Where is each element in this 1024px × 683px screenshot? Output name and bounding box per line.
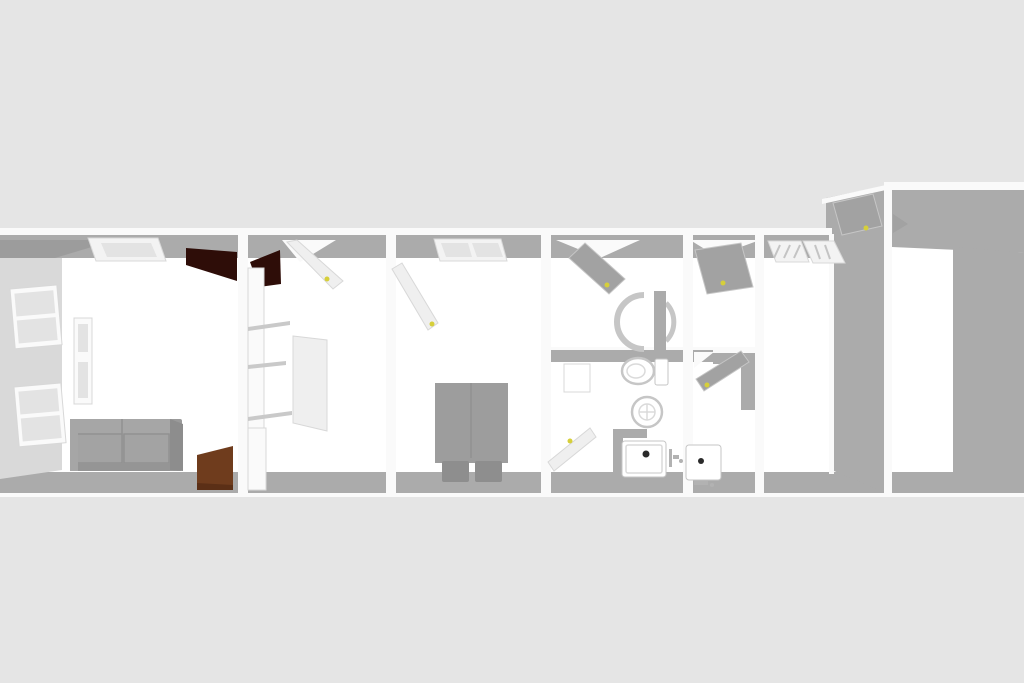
door-handle xyxy=(721,281,726,286)
window-2[interactable] xyxy=(14,383,66,447)
shelf-lower-panel xyxy=(248,428,266,490)
sofa-left-arm xyxy=(70,419,78,471)
sink-cabinet[interactable] xyxy=(564,364,590,392)
shower-tap xyxy=(673,455,679,459)
shower-knob xyxy=(710,483,714,487)
ceiling-vent[interactable] xyxy=(434,239,507,261)
toilet[interactable] xyxy=(622,358,668,385)
door-handle xyxy=(864,226,869,231)
bottom-wall-cap xyxy=(0,493,1024,497)
right-room-cap-h xyxy=(884,182,1024,190)
radiator[interactable] xyxy=(74,318,92,404)
radiator-pane xyxy=(78,362,88,398)
shower-tap xyxy=(694,481,708,485)
tray-edge xyxy=(622,441,666,477)
sofa-front-skirt xyxy=(74,463,170,471)
bath2-corner-cap xyxy=(713,350,756,353)
wall-living-room2 xyxy=(238,234,248,493)
right-room-top-face xyxy=(892,190,1024,253)
bed-pillow xyxy=(442,461,469,482)
sofa[interactable] xyxy=(70,419,183,471)
bed-pillow xyxy=(475,461,502,482)
shower-column xyxy=(669,449,672,467)
corridor-wall-edge xyxy=(829,234,834,474)
door-handle xyxy=(430,322,435,327)
window-pane xyxy=(14,290,55,316)
radiator-pane xyxy=(78,324,88,352)
toilet-tank xyxy=(655,359,668,385)
sofa-cushion xyxy=(77,434,122,463)
ceiling-light[interactable] xyxy=(88,238,166,261)
right-room-cap-v xyxy=(884,182,892,493)
shelf-side-panel xyxy=(248,268,264,428)
window-pane xyxy=(18,388,59,414)
sofa-right-side xyxy=(170,419,183,471)
door-handle xyxy=(605,283,610,288)
door-handle xyxy=(325,277,330,282)
drain xyxy=(643,451,650,458)
right-room-right-face xyxy=(953,247,1024,493)
sofa-cushion xyxy=(124,434,169,463)
drain xyxy=(698,458,704,464)
round-washbasin[interactable] xyxy=(632,397,662,427)
white-panel-door[interactable] xyxy=(293,336,327,431)
corridor-right-wall-face xyxy=(834,234,886,493)
ceiling-light-pane xyxy=(101,243,157,257)
shower1-wall-h xyxy=(613,429,647,438)
bath1-wall-post xyxy=(654,291,666,353)
wall-bedroom-bath1 xyxy=(541,234,551,493)
window-pane xyxy=(21,415,62,441)
window-1[interactable] xyxy=(10,285,62,349)
bath2-divider-cap xyxy=(693,347,762,350)
wall-bath2-corridor xyxy=(755,234,764,493)
shower-knob xyxy=(679,459,683,463)
top-wall-cap xyxy=(0,228,832,235)
door-handle xyxy=(705,383,710,388)
floorplan-3d-viewport[interactable] xyxy=(0,0,1024,683)
vent-pane xyxy=(441,243,472,257)
window-pane xyxy=(17,317,58,343)
vent-pane xyxy=(472,243,503,257)
door-handle xyxy=(568,439,573,444)
